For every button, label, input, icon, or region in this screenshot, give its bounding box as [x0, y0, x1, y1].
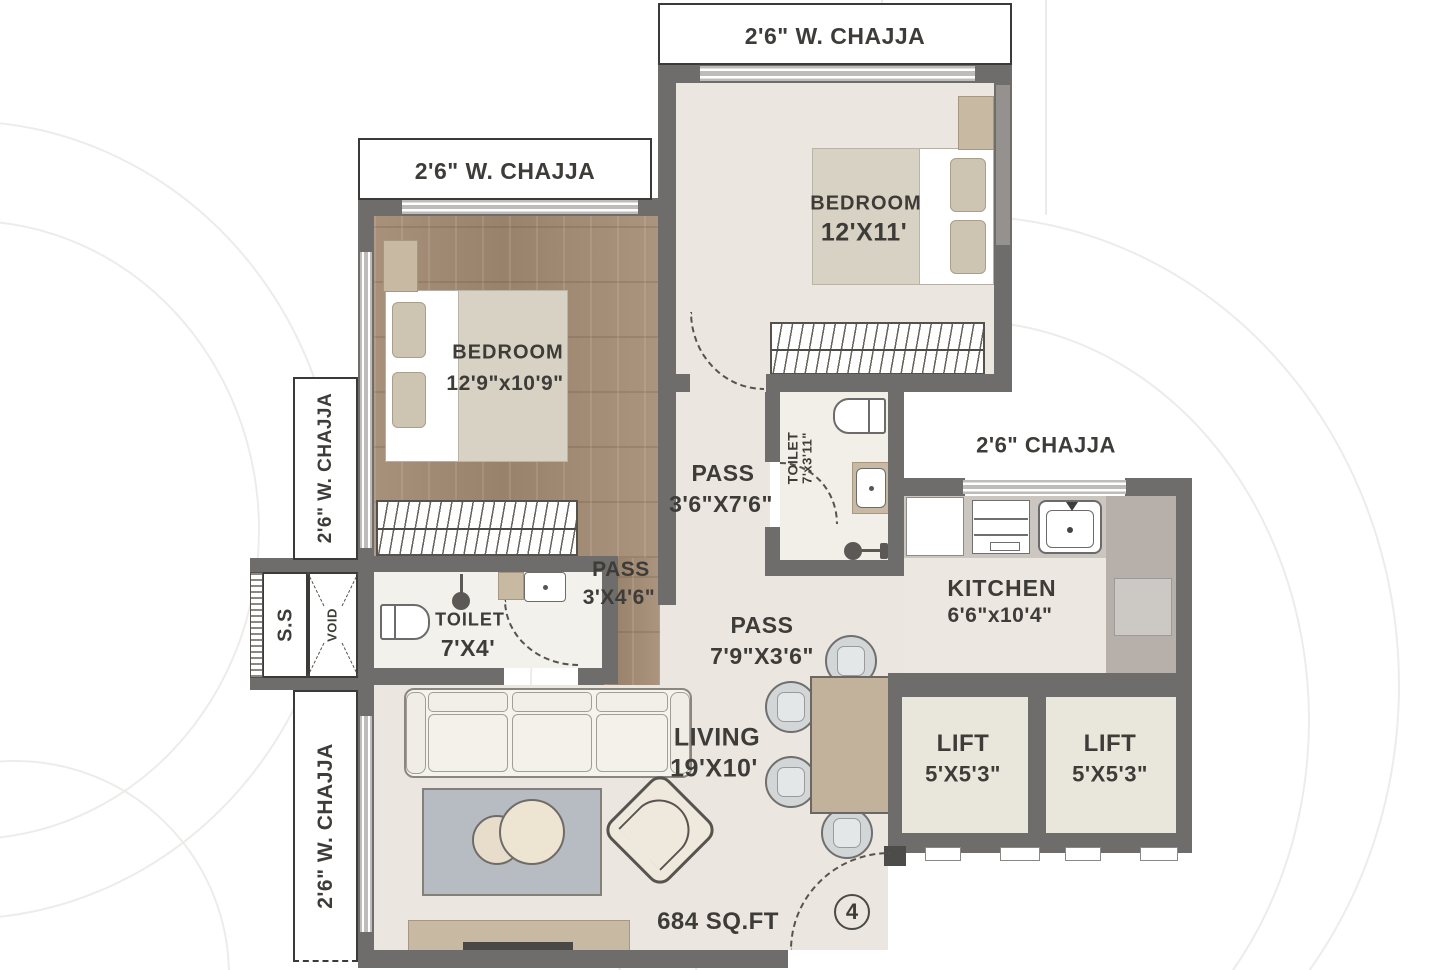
room-name: TOILET	[435, 610, 505, 631]
unit-number-badge: 4	[834, 894, 870, 930]
room-size: 3'X4'6"	[583, 586, 656, 610]
window	[360, 716, 372, 932]
bed-pillow-icon	[392, 372, 426, 428]
room-name: PASS	[731, 612, 794, 638]
room-name: LIVING	[674, 724, 760, 753]
shower-head	[880, 543, 888, 559]
wall	[765, 560, 904, 576]
wall	[250, 558, 374, 572]
nightstand-icon	[958, 96, 994, 150]
chair-seat	[777, 692, 805, 722]
sofa-back-cushion	[512, 692, 592, 712]
wc-tank-line	[394, 606, 396, 638]
lift-door-mark	[1140, 847, 1178, 861]
wall	[250, 676, 374, 690]
coffee-table-icon	[499, 799, 565, 865]
sofa-back-cushion	[596, 692, 668, 712]
room-size: 12'9"x10'9"	[446, 372, 563, 396]
wall	[888, 673, 1192, 697]
lift-door-mark	[1000, 847, 1040, 861]
wall	[658, 64, 676, 605]
room-name: TOILET	[784, 432, 800, 485]
wardrobe-line	[378, 528, 576, 530]
dish-rack-tray	[990, 542, 1020, 551]
stove-icon	[1114, 578, 1172, 636]
shower-icon	[452, 592, 470, 610]
wall	[676, 374, 690, 392]
room-name: PASS	[692, 460, 755, 486]
wc-icon	[833, 398, 886, 434]
chajja-label: 2'6" W. CHAJJA	[415, 158, 596, 184]
washbasin-drain	[543, 585, 548, 590]
wall-light	[996, 85, 1010, 245]
chair-seat	[837, 646, 865, 676]
room-size: 19'X10'	[670, 755, 758, 784]
room-size: 7'x3'11"	[801, 432, 816, 485]
room-size: 6'6"x10'4"	[948, 604, 1053, 628]
room-size: 7'X4'	[441, 635, 495, 661]
room-name: PASS	[592, 558, 650, 582]
wardrobe-icon	[770, 322, 985, 375]
dish-rack-line	[974, 518, 1028, 520]
unit-number: 4	[846, 899, 858, 925]
bed-pillow-icon	[392, 302, 426, 358]
sofa-seat-cushion	[512, 714, 592, 772]
chair-seat	[777, 767, 805, 797]
dining-table-icon	[810, 676, 892, 814]
wall	[578, 668, 604, 685]
chajja-label: 2'6" W. CHAJJA	[314, 743, 338, 909]
room-size: 12'X11'	[821, 219, 907, 248]
ss-label: S.S	[275, 608, 298, 642]
chair-seat	[833, 818, 861, 848]
dish-rack-line	[974, 534, 1028, 536]
wardrobe-icon	[376, 500, 578, 556]
wall	[374, 556, 618, 572]
window	[700, 66, 975, 81]
room-name: LIFT	[1084, 730, 1137, 758]
bed-pillow-icon	[950, 220, 986, 274]
void-label: VOID	[325, 605, 342, 645]
wardrobe-line	[772, 349, 983, 351]
toilet-shelf	[498, 572, 524, 600]
bed-pillow-icon	[950, 158, 986, 212]
room-name: BEDROOM	[452, 342, 563, 365]
shower-arm	[460, 574, 463, 594]
room-name: BEDROOM	[810, 193, 921, 216]
wall	[902, 478, 965, 496]
nightstand-icon	[383, 240, 418, 292]
wall	[374, 668, 504, 685]
wall	[766, 374, 1012, 392]
washbasin-drain	[869, 486, 874, 491]
dining-chair-icon	[821, 807, 873, 859]
sink-faucet	[1066, 502, 1078, 511]
wall	[1028, 697, 1046, 853]
room-name: LIFT	[937, 730, 990, 758]
window	[402, 200, 638, 214]
fridge-icon	[906, 497, 964, 556]
sofa-back-cushion	[428, 692, 508, 712]
sofa-seat-cushion	[428, 714, 508, 772]
toilet-mid-label: TOILET 7'x3'11"	[784, 432, 815, 485]
chajja-label: 2'6" W. CHAJJA	[315, 393, 337, 543]
room-size: 3'6"X7'6"	[669, 491, 773, 517]
wall	[1176, 478, 1192, 697]
wall	[358, 950, 788, 968]
ss-hatch-strip	[250, 572, 263, 678]
wall	[765, 392, 780, 462]
room-name: KITCHEN	[947, 575, 1056, 601]
sofa-armrest	[406, 692, 426, 774]
chajja-label: 2'6" W. CHAJJA	[745, 23, 926, 49]
room-size: 5'X5'3"	[925, 761, 1001, 786]
area-label: 684 SQ.FT	[657, 908, 779, 936]
sofa-seat-cushion	[596, 714, 668, 772]
floor-plan: 2'6" W. CHAJJA 2'6" W. CHAJJA 2'6" W. CH…	[0, 0, 1440, 970]
kitchen-entry-floor	[888, 576, 904, 673]
room-size: 5'X5'3"	[1072, 761, 1148, 786]
lift-door-mark	[1065, 847, 1101, 861]
background-line	[1045, 0, 1047, 215]
sink-drain	[1067, 527, 1073, 533]
chajja-label: 2'6" CHAJJA	[976, 432, 1116, 457]
lift-door-mark	[925, 847, 961, 861]
room-size: 7'9"X3'6"	[710, 643, 814, 669]
window	[963, 480, 1126, 494]
wc-icon	[380, 604, 430, 640]
wall	[1176, 673, 1192, 853]
window	[360, 252, 372, 548]
bed-blanket	[812, 148, 920, 285]
wc-tank-line	[868, 400, 870, 432]
